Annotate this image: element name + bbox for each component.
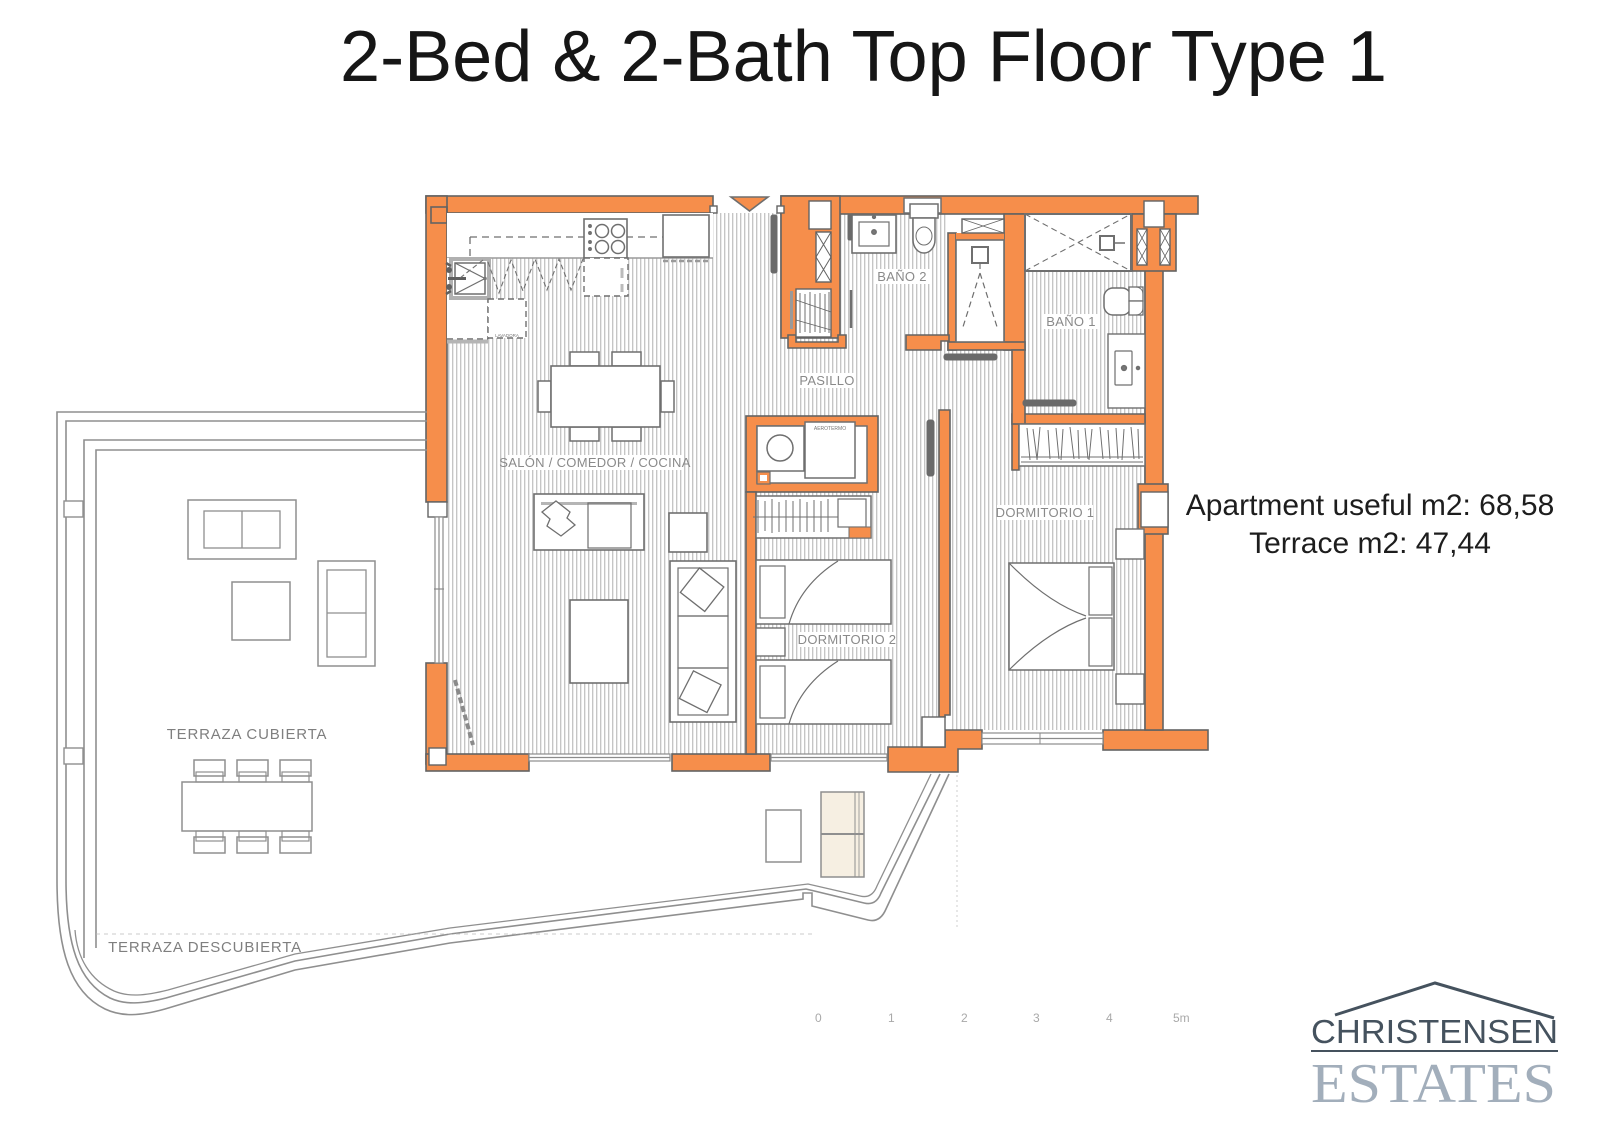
svg-text:Apartment useful m2: 68,58: Apartment useful m2: 68,58	[1186, 489, 1555, 522]
svg-text:DORMITORIO 1: DORMITORIO 1	[996, 505, 1095, 520]
svg-text:TERRAZA DESCUBIERTA: TERRAZA DESCUBIERTA	[108, 939, 302, 956]
svg-text:4: 4	[1106, 1011, 1113, 1025]
svg-text:5m: 5m	[1173, 1011, 1190, 1025]
svg-text:LAVADORA: LAVADORA	[495, 333, 519, 338]
svg-text:3: 3	[1033, 1011, 1040, 1025]
svg-text:1: 1	[888, 1011, 895, 1025]
svg-text:Terrace m2: 47,44: Terrace m2: 47,44	[1249, 527, 1491, 560]
svg-text:SALÓN / COMEDOR / COCINA: SALÓN / COMEDOR / COCINA	[499, 455, 690, 470]
svg-text:0: 0	[815, 1011, 822, 1025]
svg-text:2-Bed & 2-Bath Top Floor Type: 2-Bed & 2-Bath Top Floor Type 1	[340, 17, 1387, 97]
svg-text:PASILLO: PASILLO	[799, 373, 854, 388]
svg-text:BAÑO 1: BAÑO 1	[1046, 314, 1095, 329]
svg-text:BAÑO 2: BAÑO 2	[877, 269, 926, 284]
svg-text:DORMITORIO 2: DORMITORIO 2	[798, 632, 897, 647]
svg-text:2: 2	[961, 1011, 968, 1025]
svg-text:CHRISTENSEN: CHRISTENSEN	[1311, 1013, 1558, 1050]
svg-text:ESTATES: ESTATES	[1311, 1053, 1556, 1115]
svg-text:TERRAZA CUBIERTA: TERRAZA CUBIERTA	[167, 726, 328, 743]
svg-text:AEROTERMO: AEROTERMO	[814, 426, 846, 432]
